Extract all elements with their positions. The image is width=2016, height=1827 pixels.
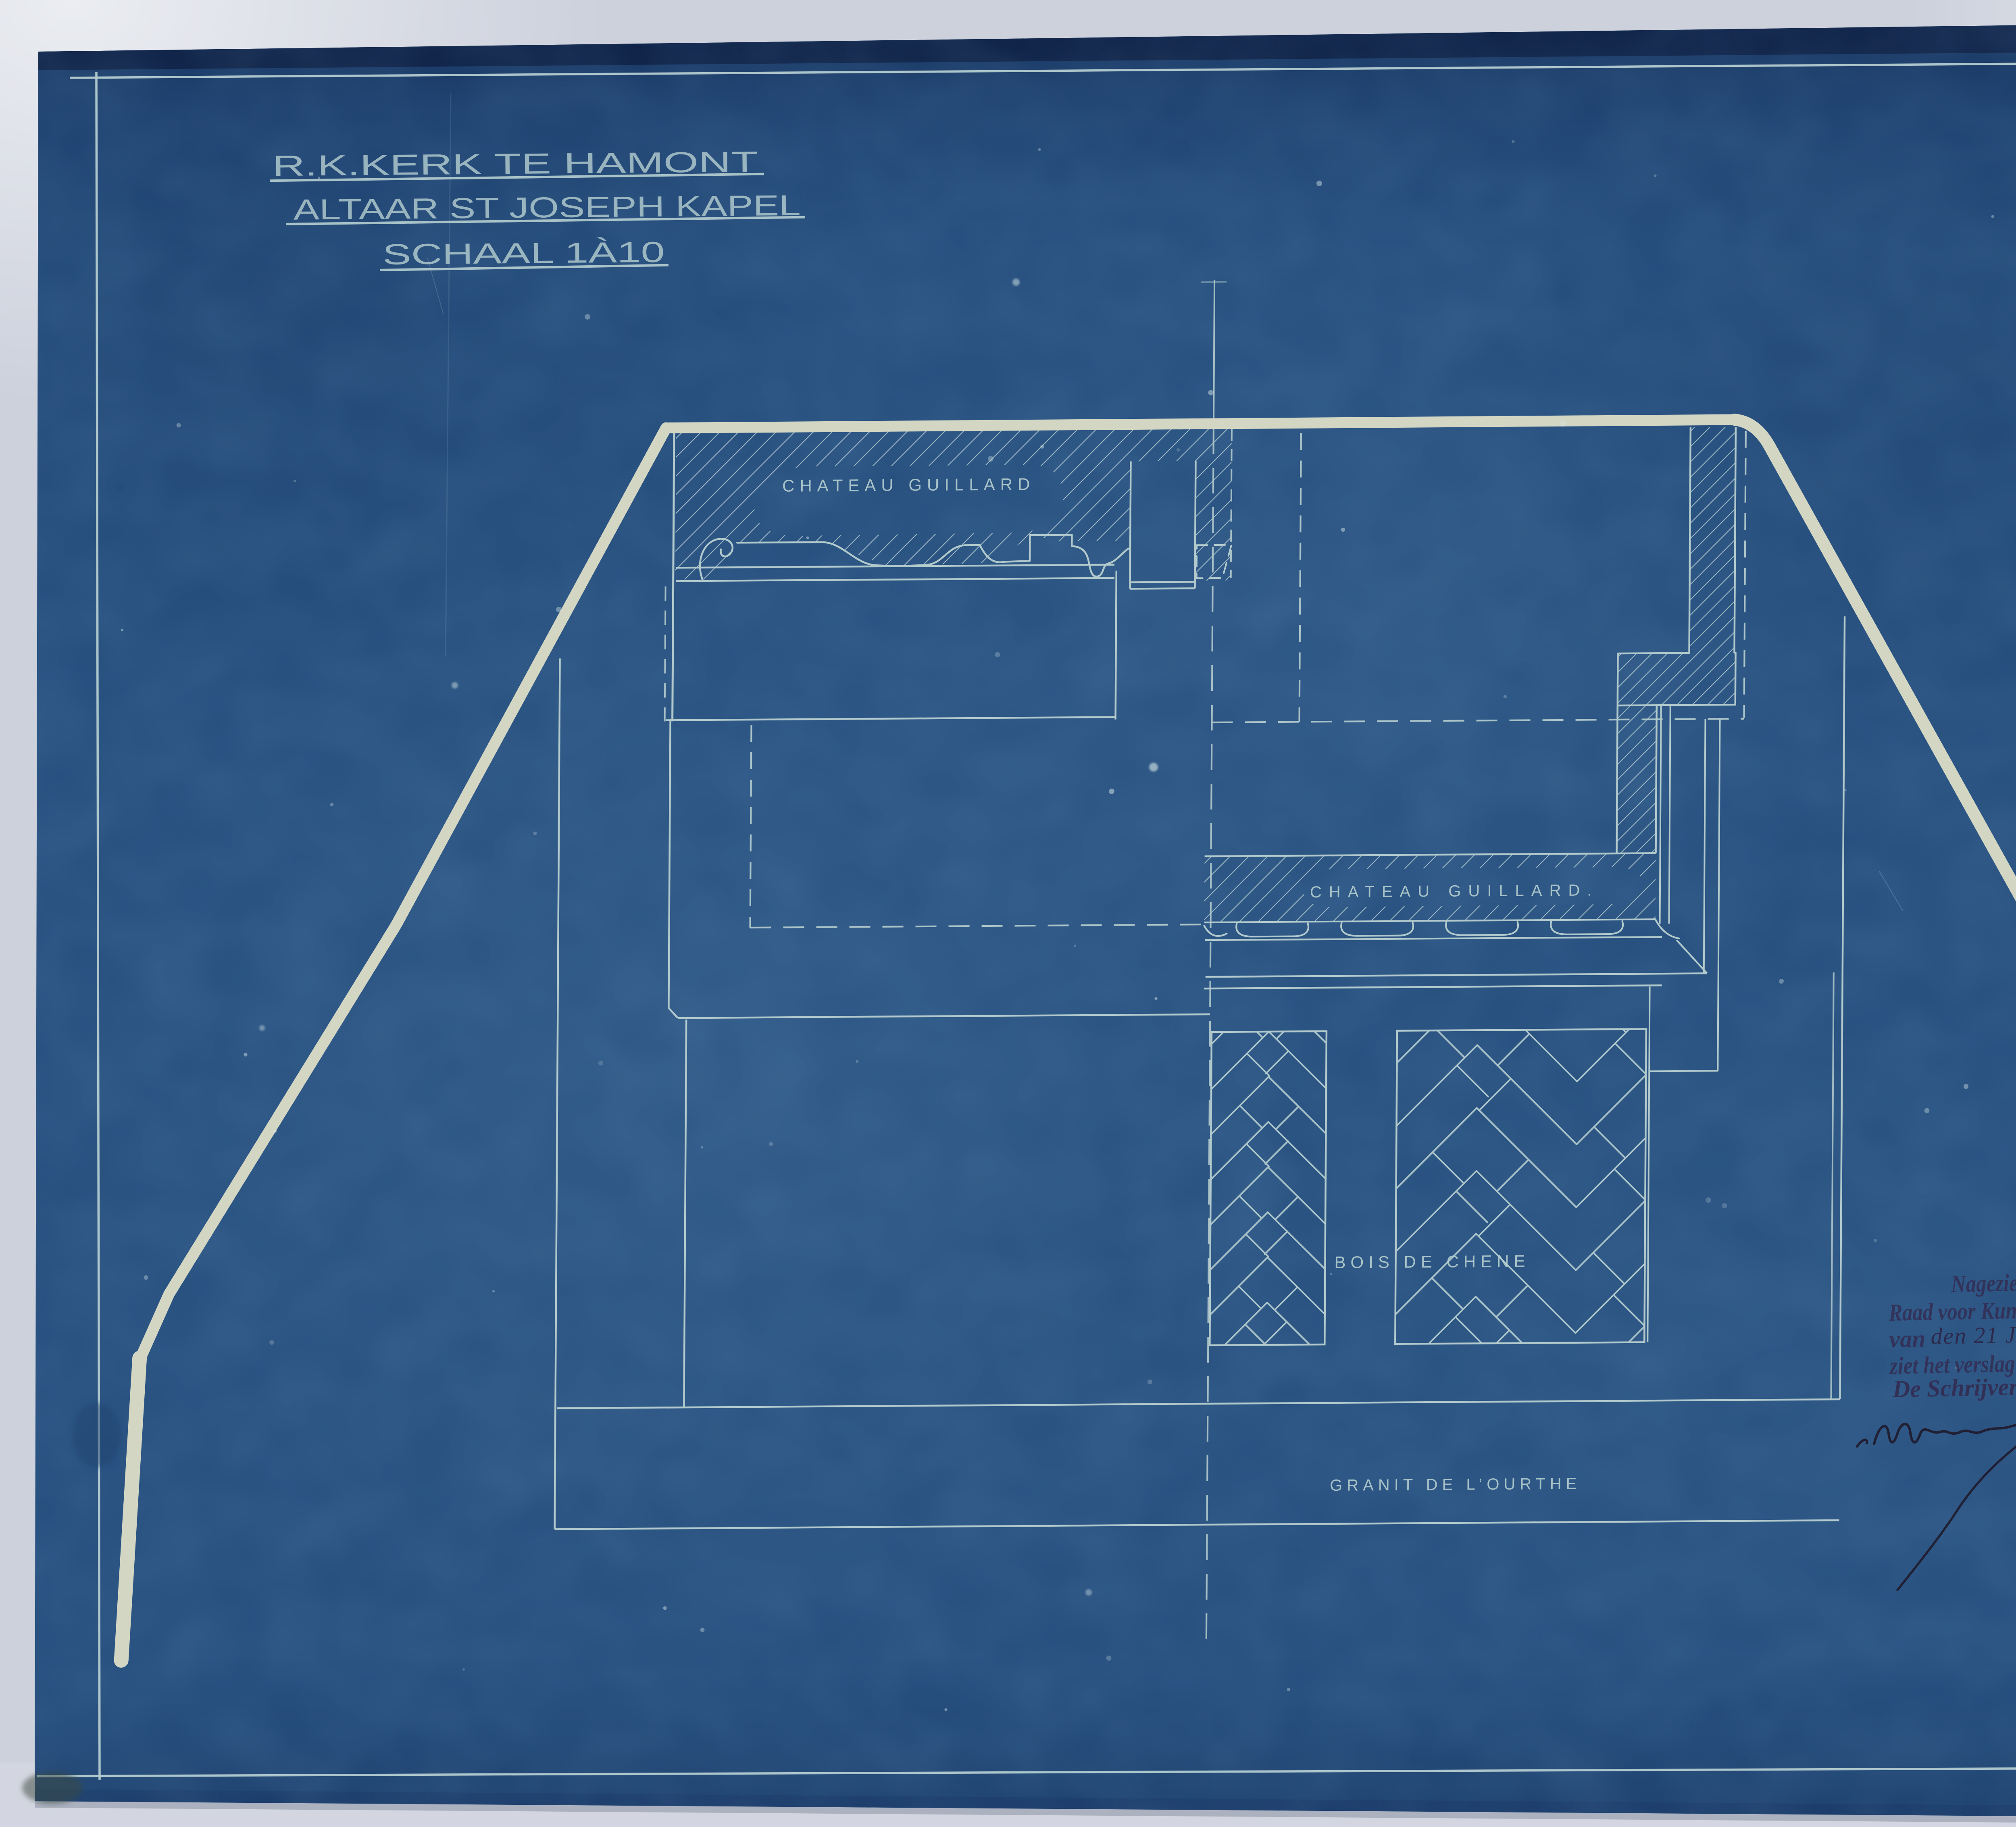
svg-text:De Schrijver,: De Schrijver, (1892, 1373, 2016, 1403)
svg-text:den 21 January 1905: den 21 January 1905 (1931, 1319, 2016, 1349)
svg-text:CHATEAU GUILLARD: CHATEAU GUILLARD (782, 474, 1035, 495)
svg-text:CHATEAU GUILLARD.: CHATEAU GUILLARD. (1310, 881, 1599, 901)
svg-text:BOIS DE CHENE: BOIS DE CHENE (1334, 1251, 1530, 1271)
svg-text:van: van (1889, 1325, 1926, 1353)
svg-text:GRANIT DE L’OURTHE: GRANIT DE L’OURTHE (1330, 1475, 1581, 1494)
